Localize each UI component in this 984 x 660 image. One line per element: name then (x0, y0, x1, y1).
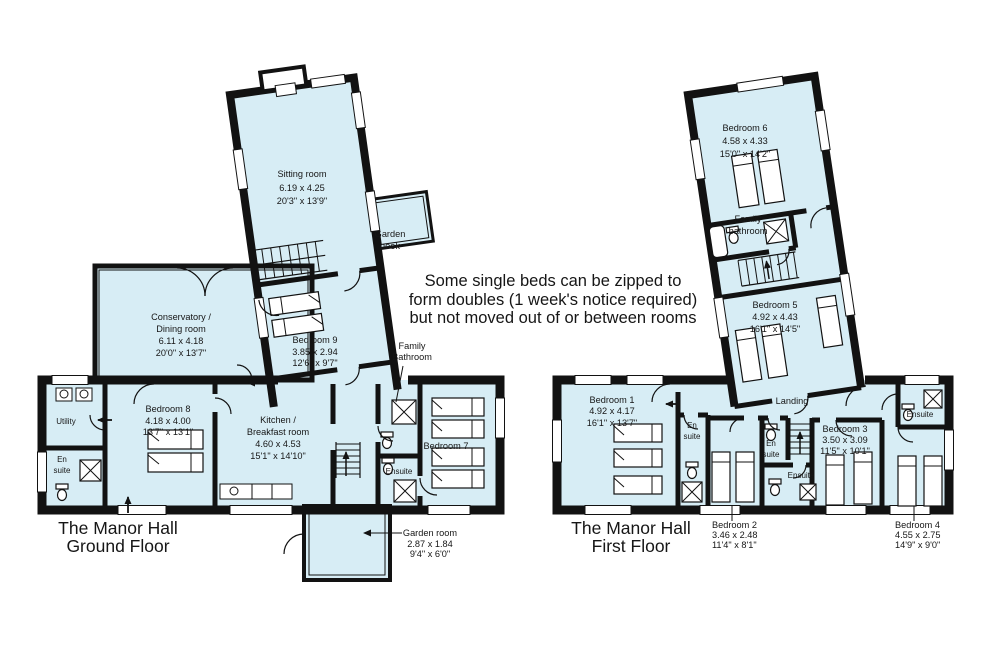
sitting-room-imperial: 20'3" x 13'9" (277, 196, 327, 206)
bedroom1-metric: 4.92 x 4.17 (589, 406, 634, 416)
ground-floor-title: Ground Floor (66, 536, 169, 556)
bed (712, 452, 730, 502)
bedroom2-imperial: 11'4" x 8'1" (712, 540, 757, 550)
bedroom5-imperial: 16'1" x 14'5" (750, 324, 800, 334)
sitting-room-label: Sitting room (277, 169, 326, 179)
first-ensuite1-label: suite (684, 432, 701, 441)
window (575, 376, 611, 385)
bed (826, 455, 844, 505)
bedroom8-label: Bedroom 8 (146, 404, 191, 414)
ground-family-bathroom-label: Family (398, 341, 425, 351)
window (700, 506, 740, 515)
window (230, 506, 292, 515)
first-ensuite2-label: En (766, 439, 776, 448)
first-family-bathroom-label: bathroom (729, 226, 768, 236)
conservatory-metric: 6.11 x 4.18 (159, 336, 204, 346)
toilet-tank (902, 404, 914, 409)
ground-ensuite-label: Ensuite (386, 467, 413, 476)
kitchen-counter (220, 484, 292, 499)
bedroom1-imperial: 16'1" x 13'7" (587, 418, 637, 428)
bedroom4-metric: 4.55 x 2.75 (895, 530, 940, 540)
toilet-tank (56, 484, 68, 489)
bed (854, 452, 872, 504)
first-ensuite1-label: En (687, 421, 697, 430)
toilet-tank (769, 479, 781, 484)
first-ensuite3-label: Ensuite (788, 471, 815, 480)
bedroom6-imperial: 15'0" x 14'2" (720, 149, 770, 159)
window (553, 420, 562, 462)
garden-room-area (304, 506, 390, 580)
bedroom3-metric: 3.50 x 3.09 (822, 435, 867, 445)
bedroom1-label: Bedroom 1 (590, 395, 635, 405)
bedroom4-label: Bedroom 4 (895, 520, 940, 530)
window (826, 506, 866, 515)
first-ensuite2-label: suite (763, 450, 780, 459)
floorplan-canvas: Sitting room 6.19 x 4.25 20'3" x 13'9" G… (0, 0, 984, 660)
toilet-tank (382, 458, 394, 463)
kitchen-label: Breakfast room (247, 427, 310, 437)
sitting-room-metric: 6.19 x 4.25 (279, 183, 324, 193)
first-floor-title: The Manor Hall (571, 518, 691, 538)
toilet-tank (686, 462, 698, 467)
utility-label: Utility (56, 417, 76, 426)
garden-room-metric: 2.87 x 1.84 (407, 539, 452, 549)
beds-note: form doubles (1 week's notice required) (409, 291, 697, 309)
bedroom9-imperial: 12'6" x 9'7" (292, 358, 337, 368)
bedroom6-metric: 4.58 x 4.33 (722, 136, 767, 146)
bed (148, 453, 203, 472)
bedroom4-imperial: 14'9" x 9'0" (895, 540, 940, 550)
window (52, 376, 88, 385)
window (118, 506, 166, 515)
bedroom5-metric: 4.92 x 4.43 (752, 312, 797, 322)
bedroom6-label: Bedroom 6 (723, 123, 768, 133)
plan-root: Sitting room 6.19 x 4.25 20'3" x 13'9" G… (38, 66, 954, 580)
bedroom9-label: Bedroom 9 (293, 335, 338, 345)
bedroom2-label: Bedroom 2 (712, 520, 757, 530)
kitchen-imperial: 15'1" x 14'10" (250, 451, 306, 461)
bedroom2-metric: 3.46 x 2.48 (712, 530, 757, 540)
counter (220, 484, 292, 499)
conservatory-label: Dining room (156, 324, 206, 334)
toilet-bowl (771, 485, 780, 496)
conservatory-imperial: 20'0" x 13'7" (156, 348, 206, 358)
bedroom8-metric: 4.18 x 4.00 (145, 416, 190, 426)
bedroom8-imperial: 13'7" x 13'1" (143, 427, 193, 437)
ground-ensuite-left-label: En (57, 455, 67, 464)
garden-nook-label: nook (380, 241, 400, 251)
beds-note: Some single beds can be zipped to (425, 272, 682, 290)
floorplan-page: Sitting room 6.19 x 4.25 20'3" x 13'9" G… (0, 0, 984, 660)
garden-room-imperial: 9'4" x 6'0" (410, 549, 450, 559)
window (905, 376, 939, 385)
window (627, 376, 663, 385)
ground-ensuite-left-label: suite (54, 466, 71, 475)
window (890, 506, 930, 515)
window (496, 398, 505, 438)
garden-room-label: Garden room (403, 528, 457, 538)
first-family-bathroom-label: Family (734, 214, 761, 224)
toilet-bowl (58, 490, 67, 501)
bedroom7-label: Bedroom 7 (424, 441, 469, 451)
bedroom1-beds (614, 424, 662, 494)
conservatory-label: Conservatory / (151, 312, 211, 322)
first-floor-title: First Floor (592, 536, 671, 556)
bed (924, 456, 942, 506)
window (428, 506, 470, 515)
bed (736, 452, 754, 502)
window (38, 452, 47, 492)
bed (898, 456, 916, 506)
ground-floor-title: The Manor Hall (58, 518, 178, 538)
garden-nook-label: Garden (375, 229, 406, 239)
beds-note: but not moved out of or between rooms (409, 309, 696, 327)
hearth (275, 83, 296, 97)
ground-family-bathroom-label: Bathroom (392, 352, 432, 362)
door-arc (284, 534, 304, 554)
landing-label: Landing (776, 396, 809, 406)
bedroom3-imperial: 11'5" x 10'1" (820, 446, 870, 456)
bedroom3-label: Bedroom 3 (823, 424, 868, 434)
window (585, 506, 631, 515)
kitchen-label: Kitchen / (260, 415, 296, 425)
toilet-bowl (688, 468, 697, 479)
window (945, 430, 954, 470)
kitchen-metric: 4.60 x 4.53 (255, 439, 300, 449)
bedroom5-label: Bedroom 5 (753, 300, 798, 310)
first-ensuite4-label: Ensuite (907, 410, 934, 419)
bedroom9-metric: 3.85 x 2.94 (292, 347, 337, 357)
